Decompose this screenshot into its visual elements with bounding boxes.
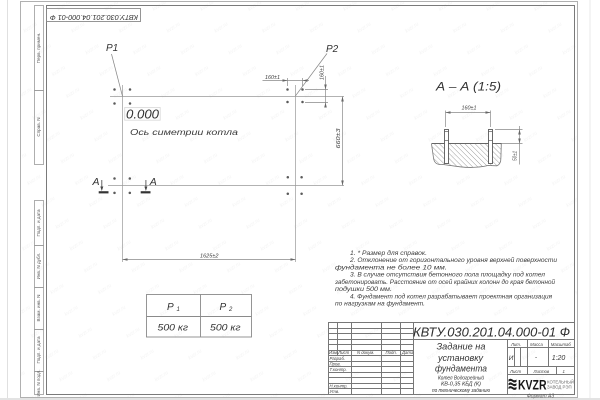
- svg-text:Изм.Лист: Изм.Лист: [329, 350, 350, 355]
- svg-text:500 кг: 500 кг: [158, 323, 189, 334]
- svg-text:160±1: 160±1: [462, 106, 477, 112]
- svg-text:N докум.: N докум.: [357, 350, 374, 355]
- svg-text:KVZR: KVZR: [518, 378, 547, 393]
- svg-text:фундамента: фундамента: [435, 364, 487, 374]
- svg-text:КВТУ.030.201.04.000-01 Ф: КВТУ.030.201.04.000-01 Ф: [50, 13, 138, 22]
- svg-text:160±1: 160±1: [320, 65, 326, 80]
- svg-text:Масштаб: Масштаб: [551, 342, 572, 347]
- svg-text:160±1: 160±1: [265, 75, 280, 81]
- svg-text:по нагрузкам на фундамент.: по нагрузкам на фундамент.: [335, 301, 425, 308]
- svg-text:А – А (1:5): А – А (1:5): [435, 80, 501, 94]
- svg-text:4. Фундамент под котел разраба: 4. Фундамент под котел разрабатывает про…: [350, 293, 553, 300]
- svg-text:Перв. примен.: Перв. примен.: [36, 33, 41, 64]
- svg-text:1625±2: 1625±2: [200, 254, 219, 260]
- svg-text:2. Отклонение от горизонтально: 2. Отклонение от горизонтального уровня …: [349, 257, 558, 264]
- svg-text:Р: Р: [167, 302, 174, 313]
- svg-text:Ось симетрии котла: Ось симетрии котла: [130, 128, 239, 137]
- svg-text:0.000: 0.000: [126, 108, 159, 122]
- svg-text:1: 1: [177, 307, 180, 313]
- svg-text:забетонировать. Расстояние от: забетонировать. Расстояние от осей крайн…: [334, 279, 556, 286]
- svg-text:Утв.: Утв.: [330, 389, 340, 394]
- svg-text:Справ. N: Справ. N: [36, 117, 41, 136]
- svg-text:фундамента не более 10 мм.: фундамента не более 10 мм.: [335, 264, 447, 271]
- svg-text:Листов: Листов: [533, 369, 550, 374]
- svg-text:Формат А3: Формат А3: [527, 394, 555, 400]
- svg-text:Подп. и дата: Подп. и дата: [36, 336, 41, 364]
- svg-text:Лит.: Лит.: [510, 342, 521, 347]
- svg-text:Задание на: Задание на: [437, 341, 486, 351]
- svg-text:Лист: Лист: [509, 369, 521, 374]
- svg-text:500 кг: 500 кг: [210, 323, 241, 334]
- svg-text:3. В случае отсутствия бетонно: 3. В случае отсутствия бетонного пола пл…: [350, 272, 546, 279]
- svg-text:Р1: Р1: [106, 43, 118, 54]
- svg-text:Масса: Масса: [530, 342, 543, 347]
- svg-text:Взам. инв. N: Взам. инв. N: [36, 295, 41, 322]
- svg-text:Разраб.: Разраб.: [330, 356, 346, 361]
- svg-text:2: 2: [228, 307, 233, 313]
- svg-text:Подп.: Подп.: [386, 350, 397, 355]
- svg-text:А: А: [92, 176, 100, 188]
- svg-text:по техническому заданию: по техническому заданию: [432, 388, 490, 394]
- svg-text:660±3: 660±3: [336, 127, 342, 148]
- svg-text:Пров.: Пров.: [330, 362, 341, 367]
- svg-text:1:20: 1:20: [552, 355, 566, 362]
- svg-text:ЗАВОД РЭП: ЗАВОД РЭП: [547, 385, 572, 390]
- svg-text:Р: Р: [220, 302, 227, 313]
- svg-text:1. * Размер для справок.: 1. * Размер для справок.: [350, 250, 427, 257]
- svg-text:установку: установку: [437, 353, 484, 363]
- svg-text:А: А: [149, 176, 157, 188]
- svg-text:Подп. и дата: Подп. и дата: [36, 209, 41, 237]
- svg-text:Инв. N подл.: Инв. N подл.: [36, 369, 41, 396]
- svg-text:подушки 500 мм.: подушки 500 мм.: [335, 286, 392, 293]
- svg-text:Инв. N дубл.: Инв. N дубл.: [36, 253, 41, 280]
- svg-text:КВ-0,35 КБД (К): КВ-0,35 КБД (К): [441, 382, 481, 388]
- svg-text:Дата: Дата: [401, 350, 414, 355]
- svg-text:50±1: 50±1: [513, 151, 519, 161]
- svg-text:И: И: [509, 355, 514, 362]
- svg-text:КВТУ.030.201.04.000-01 Ф: КВТУ.030.201.04.000-01 Ф: [413, 324, 570, 339]
- svg-text:Р2: Р2: [326, 44, 339, 55]
- svg-text:Т.контр.: Т.контр.: [330, 367, 347, 372]
